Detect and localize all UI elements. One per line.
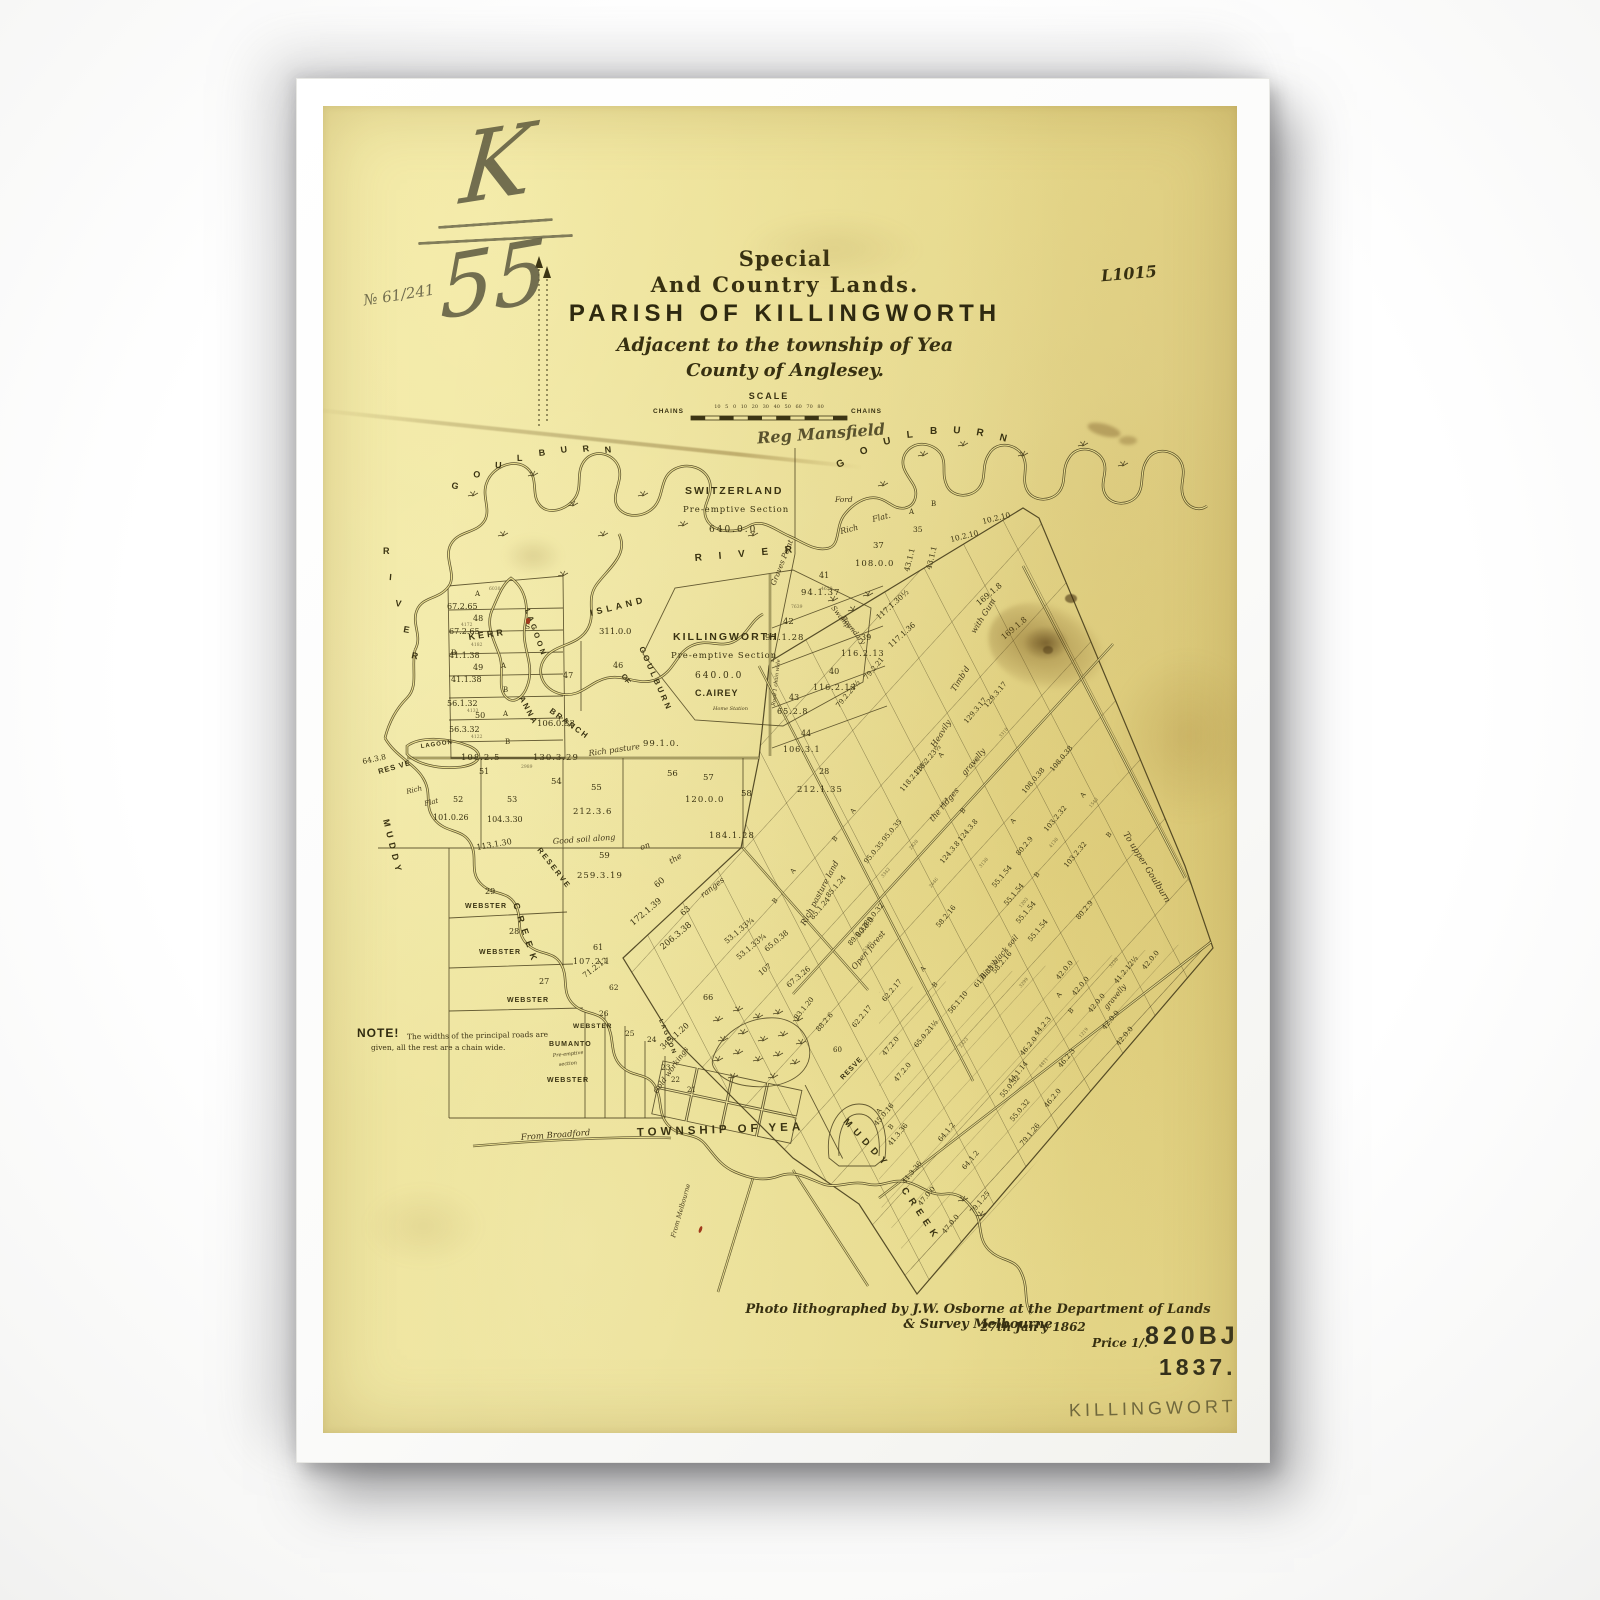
map-label: Rich: [838, 523, 859, 536]
map-label: 212.3.6: [573, 807, 612, 817]
map-label: I: [389, 572, 392, 582]
scale-bar-graphic: [691, 416, 847, 420]
note-label: NOTE!: [357, 1026, 399, 1040]
map-label: 58: [741, 789, 752, 799]
map-label: 4182: [471, 642, 483, 648]
map-label: 25: [625, 1029, 635, 1038]
map-label: 106.0.33: [537, 719, 575, 729]
map-label: WEBSTER: [507, 997, 549, 1004]
map-label: A: [908, 508, 915, 516]
map-label: L: [906, 429, 913, 441]
map-label: 4172: [461, 622, 473, 628]
map-label: 212.1.35: [797, 785, 843, 795]
map-label: 66: [703, 993, 713, 1002]
map-label: WEBSTER: [465, 903, 507, 910]
map-label: O: [859, 445, 870, 458]
map-label: 27: [539, 977, 549, 986]
map-label: 22: [671, 1076, 680, 1084]
map-label: 37: [873, 541, 884, 551]
map-label: 108.0.0: [855, 559, 894, 569]
map-label: ISLAND: [589, 594, 647, 618]
map-label: R: [383, 546, 390, 556]
map-label: 101.0.26: [433, 813, 469, 822]
map-label: R: [582, 443, 590, 454]
map-label: 61: [593, 943, 603, 952]
map-label: Pre-emptive Section: [683, 505, 789, 515]
map-label: B: [930, 426, 937, 437]
map-label: R: [975, 427, 985, 439]
map-label: 29: [485, 887, 495, 896]
map-label: 54: [551, 777, 562, 787]
map-label: 40: [829, 667, 839, 676]
map-label: 53: [507, 795, 517, 804]
map-label: B: [505, 738, 510, 746]
map-label: on: [639, 840, 651, 852]
map-label: SWITZERLAND: [685, 485, 783, 497]
map-label: 259.3.19: [577, 871, 623, 881]
map-label: From Melbourne: [669, 1183, 692, 1240]
map-label: 640.0.0: [695, 671, 743, 681]
scale-chains-left: CHAINS: [653, 408, 684, 415]
map-label: Rich pasture: [587, 742, 641, 758]
map-label: 7639: [791, 604, 803, 610]
scale-label: SCALE: [721, 391, 817, 401]
map-label: 42: [783, 617, 794, 627]
map-label: 4122: [471, 734, 483, 740]
map-label: 108.2.5: [461, 753, 500, 763]
map-label: U: [560, 444, 568, 455]
map-label: 56.3.32: [449, 725, 480, 734]
map-label: G: [451, 480, 460, 491]
map-label: WEBSTER: [573, 1023, 613, 1030]
map-label: 640.0.0: [709, 525, 757, 535]
map-label: 35: [913, 525, 923, 534]
map-label: 4650: [821, 586, 833, 592]
map-label: 172.1.39: [629, 896, 664, 928]
map-label: 41: [819, 571, 829, 580]
map-label: 48: [473, 614, 483, 623]
map-label: 67.2.65: [449, 627, 480, 636]
map-label: Ford: [834, 495, 853, 504]
map-label: 104.3.30: [487, 815, 523, 824]
map-label: 28: [819, 767, 829, 776]
map-label: Pre-emptive: [552, 1050, 584, 1059]
map-label: 65.2.8: [777, 707, 808, 716]
map-label: 311.0.0: [599, 627, 631, 637]
map-label: A: [502, 710, 509, 718]
catalog-stamp-code: 820BJ: [1145, 1322, 1237, 1351]
catalog-stamp-year: 1837.: [1159, 1354, 1237, 1381]
map-label: BUMANTO: [549, 1041, 592, 1048]
map-label: 56.1.32: [447, 699, 478, 708]
map-label: U: [953, 425, 961, 437]
map-label: 41.1.38: [451, 675, 482, 684]
map-label: 184.1.28: [709, 831, 755, 841]
map-label: S: [525, 622, 530, 631]
map-label: 51: [479, 767, 489, 776]
map-label: Flat: [423, 797, 440, 808]
map-label: 39: [861, 633, 871, 642]
map-label: 43.1.1: [902, 547, 917, 572]
map-label: 55: [591, 783, 602, 793]
map-label: 44: [801, 729, 811, 738]
map-label: 52: [453, 795, 463, 804]
map-label: O: [473, 469, 481, 480]
map-label: 41.1.38: [449, 651, 480, 660]
map-label: GOULBURN: [637, 645, 674, 713]
map-label: 46: [613, 661, 623, 670]
map-label: WEBSTER: [479, 949, 521, 956]
map-label: Home Station: [712, 706, 748, 712]
map-label: 62: [609, 983, 619, 992]
map-label: 99.1.0.: [643, 739, 680, 749]
map-label: RESERVE: [535, 846, 573, 891]
scale-tick-numbers: 10 5 0 10 20 30 40 50 60 70 80: [683, 404, 855, 410]
map-label: Rich: [405, 784, 423, 796]
map-label: 28: [509, 927, 519, 936]
pencil-plate-letter: K: [456, 106, 537, 227]
map-label: 120.0.0: [685, 795, 724, 805]
map-label: R: [411, 650, 420, 661]
map-label: 64.3.8: [362, 752, 387, 766]
scale-chains-right: CHAINS: [851, 408, 882, 415]
map-label: the: [668, 851, 684, 865]
map-label: 97.1.28: [765, 633, 804, 643]
map-label: B: [503, 686, 508, 694]
map-label: G: [835, 457, 847, 470]
map-label: Pre-emptive Section: [671, 651, 777, 661]
map-label: U: [495, 460, 502, 470]
map-label: V: [395, 598, 402, 609]
map-label: MUDDY: [381, 818, 405, 877]
map-label: 4133: [467, 708, 479, 714]
map-label: WEBSTER: [547, 1077, 589, 1084]
parcel-lattice: [623, 508, 1217, 1294]
map-label: LAGOON: [420, 740, 453, 750]
map-label: C.AIREY: [695, 688, 739, 698]
map-label: 130.3.29: [533, 753, 579, 763]
map-label: OF: [619, 672, 633, 686]
pencil-caption: KILLINGWORTH: [1069, 1396, 1237, 1422]
gallery-wall: GOULBURNGOULBURNRIVERR I V E RGraves Poi…: [0, 0, 1600, 1600]
map-label: N: [604, 444, 612, 455]
map-title-line1: Special: [525, 246, 1045, 271]
map-label: 43: [789, 693, 799, 702]
map-subtitle-county: County of Anglesey.: [525, 360, 1045, 381]
map-label: A: [500, 662, 507, 670]
map-sheet: GOULBURNGOULBURNRIVERR I V E RGraves Poi…: [323, 106, 1237, 1433]
map-label: 56: [667, 769, 678, 779]
map-label: 106.3.1: [783, 745, 821, 754]
map-label: section: [559, 1060, 578, 1068]
map-label: 21: [687, 1086, 696, 1094]
map-label: 2989: [521, 764, 533, 770]
map-label: 24: [647, 1035, 657, 1044]
map-label: 6030: [489, 586, 501, 592]
map-label: 60: [833, 1046, 842, 1054]
map-label: B: [538, 447, 546, 458]
note-line2: given, all the rest are a chain wide.: [371, 1043, 505, 1052]
map-label: Flat.: [870, 511, 891, 524]
map-label: E: [403, 624, 411, 635]
map-label: L: [517, 453, 523, 463]
map-label: A: [474, 590, 481, 598]
map-label: Good soil along: [553, 833, 616, 846]
map-label: 26: [599, 1009, 609, 1018]
map-title-parish: PARISH OF KILLINGWORTH: [525, 300, 1045, 328]
map-label: 67.2.65: [447, 602, 478, 611]
map-label: KILLINGWORTH: [673, 631, 779, 643]
map-label: 59: [599, 851, 610, 861]
picture-frame-mat: GOULBURNGOULBURNRIVERR I V E RGraves Poi…: [296, 78, 1270, 1463]
map-label: N: [998, 432, 1008, 444]
map-label: 60: [653, 876, 668, 891]
map-subtitle-township: Adjacent to the township of Yea: [525, 334, 1045, 356]
map-label: 49: [473, 663, 483, 672]
map-label: 47: [563, 671, 573, 680]
map-title-line2: And Country Lands.: [525, 272, 1045, 297]
map-label: B: [931, 500, 936, 508]
map-label: 57: [703, 773, 714, 783]
credit-date: 27th Jan'y 1862: [923, 1320, 1143, 1334]
